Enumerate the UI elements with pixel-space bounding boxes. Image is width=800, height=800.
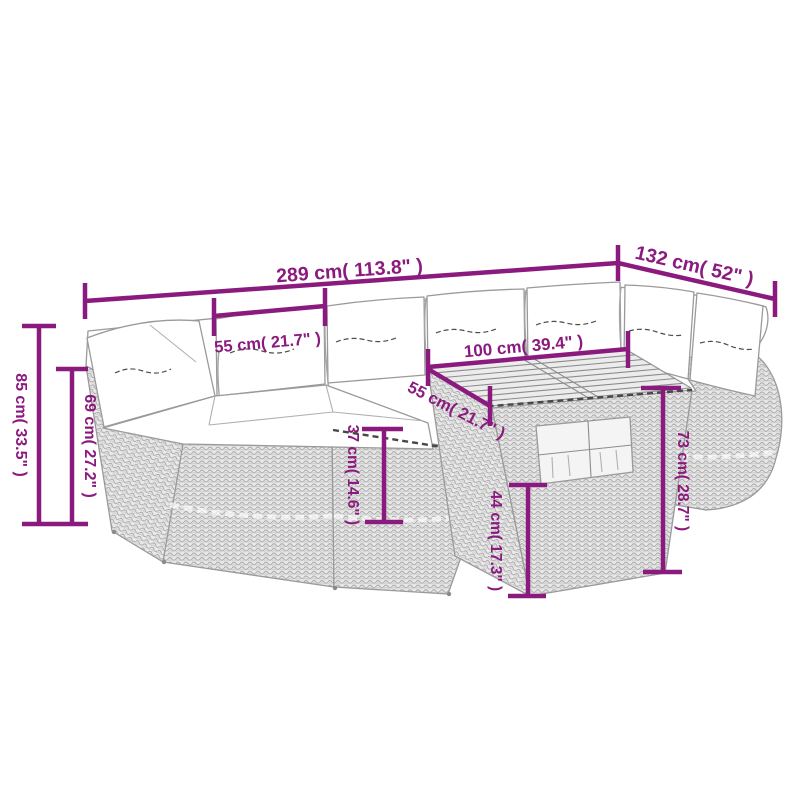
- dimension-back-height: 85 cm( 33.5" ): [12, 326, 88, 524]
- back-cushion-3: [327, 297, 425, 383]
- dimension-diagram-canvas: 289 cm( 113.8" ) 132 cm( 52" ) 55 cm( 21…: [0, 0, 800, 800]
- dimension-label-back-height: 85 cm( 33.5" ): [12, 373, 29, 477]
- dimension-label-overall-depth: 132 cm( 52" ): [633, 242, 756, 291]
- dimension-label-seat-height: 37 cm( 14.6" ): [344, 425, 361, 525]
- furniture-diagram-svg: 289 cm( 113.8" ) 132 cm( 52" ) 55 cm( 21…: [0, 0, 800, 800]
- dimension-label-arm-height: 69 cm( 27.2" ): [81, 394, 98, 498]
- dimension-label-shelf-height: 44 cm( 17.3" ): [487, 491, 504, 591]
- dimension-label-table-height: 73 cm( 28.7" ): [674, 431, 691, 531]
